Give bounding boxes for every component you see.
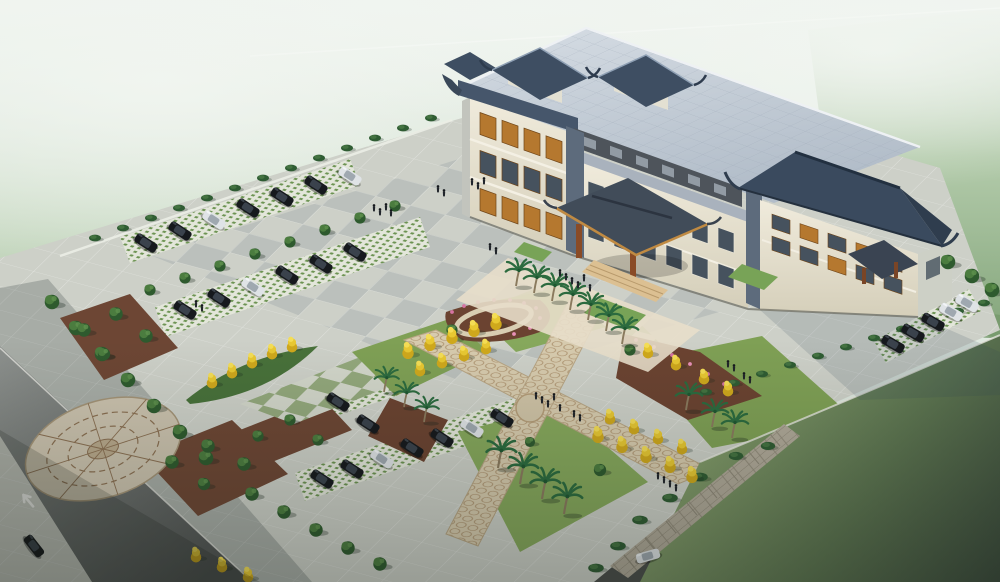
person xyxy=(583,274,586,281)
canopy-column-left xyxy=(576,224,582,258)
person xyxy=(373,204,376,211)
rendering-canvas: Aerial architectural rendering of a Chin… xyxy=(0,0,1000,582)
person xyxy=(577,281,580,288)
person xyxy=(195,300,198,307)
person xyxy=(201,304,204,311)
atmosphere xyxy=(0,340,1000,582)
person xyxy=(443,189,446,196)
person xyxy=(489,243,492,250)
person xyxy=(495,247,498,254)
person xyxy=(477,182,480,189)
left-wing-side xyxy=(462,97,470,218)
architectural-rendering: Aerial architectural rendering of a Chin… xyxy=(0,0,1000,582)
person xyxy=(471,178,474,185)
vignette-bottom xyxy=(0,340,1000,582)
person xyxy=(565,273,568,280)
person xyxy=(483,177,486,184)
person xyxy=(390,209,393,216)
person xyxy=(379,208,382,215)
person xyxy=(385,203,388,210)
person xyxy=(559,269,562,276)
person xyxy=(589,284,592,291)
person xyxy=(571,277,574,284)
corner-pylon-right xyxy=(746,190,762,310)
person xyxy=(437,185,440,192)
render-stage: Aerial architectural rendering of a Chin… xyxy=(0,0,1000,582)
